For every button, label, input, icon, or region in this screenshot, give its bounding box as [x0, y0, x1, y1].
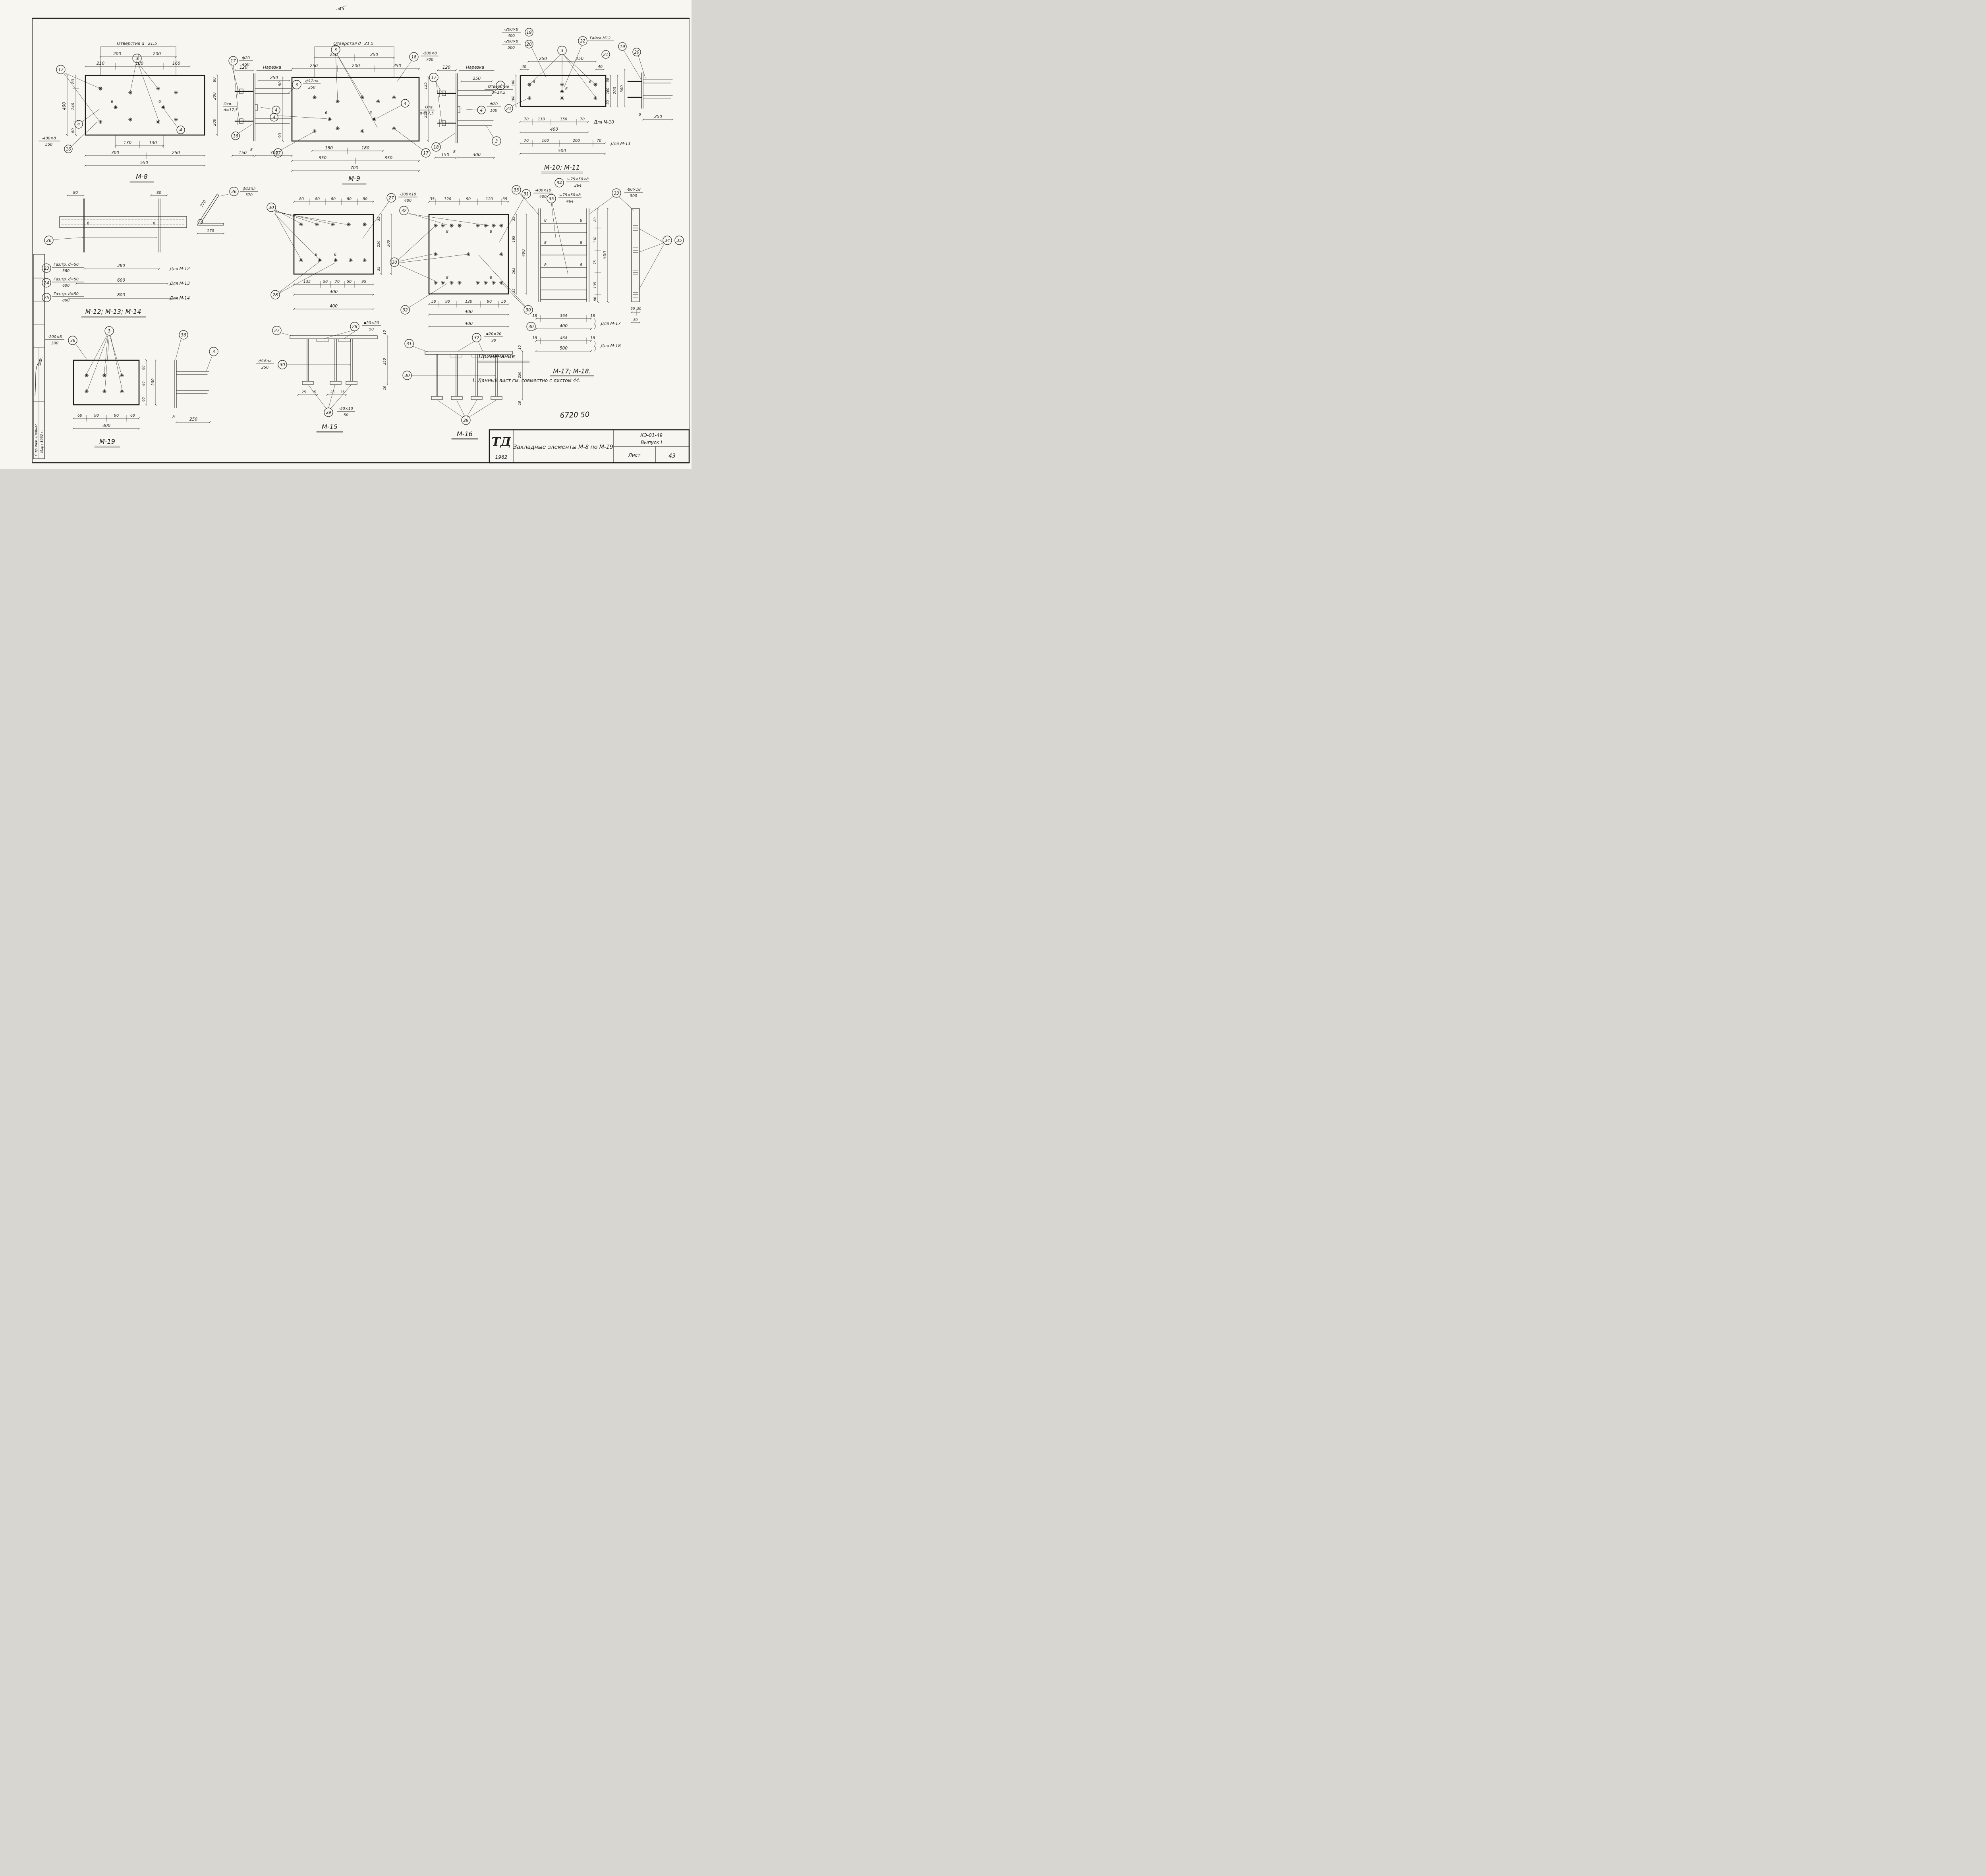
callout-21-label: 21	[506, 106, 511, 111]
view-label: М-15	[322, 423, 338, 431]
dim-text: 165	[512, 268, 516, 274]
dim-text: 25	[302, 390, 306, 394]
weld-note: ▪20×20 50	[362, 321, 381, 332]
view-m8: Отверстия d=21,5 200 200 210 180 160 6 6…	[39, 41, 321, 182]
dim-text: 270	[199, 199, 207, 208]
weld-mark: 8	[580, 263, 582, 267]
dim-text: 80	[71, 128, 75, 133]
gas-note: Газ.тр. d=50 600	[52, 277, 84, 288]
row-for: Для М-18	[600, 344, 621, 348]
svg-text:-80×18: -80×18	[626, 187, 641, 192]
view-m15: 30 80 80 80 80 80 27 -300×10 400 6 6	[256, 192, 417, 433]
callout-17-label: 17	[275, 151, 281, 156]
signature	[35, 357, 42, 395]
weld-mark: 6	[111, 100, 113, 104]
dim-text: 18	[590, 336, 595, 340]
dim-text: 10	[518, 345, 522, 350]
svg-text:-500×8: -500×8	[423, 51, 437, 56]
dim-text: 35	[340, 390, 345, 394]
weld-mark: 8	[544, 218, 547, 223]
plate-note: -400×8 550	[39, 136, 60, 147]
rod-note: ф16пл 250	[256, 359, 274, 370]
dim-text: 400	[330, 290, 338, 294]
callout-18-label: 18	[433, 145, 439, 150]
dim-text: 250	[189, 417, 197, 422]
view-m1011: -200×8 400 19 -200×8 500 20 22 Гайка М12…	[485, 27, 672, 173]
callout-30-label: 30	[269, 205, 274, 210]
callout-25-label: 25	[44, 296, 49, 300]
sheet-label: Лист	[628, 452, 641, 458]
callout-27-label: 27	[274, 328, 280, 333]
callout-32-label: 32	[402, 308, 408, 313]
title-block: ТД 1962 Закладные элементы М-8 по М-19 К…	[489, 430, 689, 463]
dim-text: 250	[270, 75, 278, 80]
weld-note: ▪20×20 90	[484, 332, 503, 343]
dim-text: 90	[114, 413, 119, 418]
dim-text: 70	[524, 117, 529, 122]
svg-text:ф12пл: ф12пл	[305, 79, 319, 83]
svg-text:∟75×50×8: ∟75×50×8	[559, 193, 581, 197]
dim-text: 400	[465, 321, 473, 326]
angle-note: ∟75×50×8 364	[566, 177, 589, 188]
dim-text: 500	[560, 346, 568, 351]
callout-31-label: 31	[524, 192, 529, 197]
bracket-detail: 26 ф12пл 570 270 170	[197, 187, 258, 234]
dim-text: 200	[213, 119, 217, 126]
holes-note: Отверстия d=21,5	[334, 41, 374, 46]
weld-mark: 6	[533, 80, 535, 84]
view-m9: Отверстия d=21,5 250 250 18 -500×8 700 2…	[270, 41, 505, 184]
dim-text: 120	[486, 197, 493, 201]
dim-text: 300	[111, 151, 119, 155]
dim-text: 70	[580, 117, 585, 122]
callout-4-label: 4	[77, 122, 80, 127]
dim-text: 80	[363, 197, 367, 201]
dim-text: 80	[593, 297, 597, 301]
callout-34-label: 34	[556, 181, 562, 185]
callout-30-label: 30	[392, 260, 397, 265]
dim-text: 150	[441, 153, 449, 157]
svg-text:-400×10: -400×10	[535, 188, 551, 193]
dim-text: 400	[522, 249, 526, 257]
weld-mark: 6	[315, 253, 317, 257]
plate-note: -200×8 500	[502, 39, 521, 50]
hole-note: Отв. d=17,5	[420, 105, 435, 116]
dim-text: 120	[444, 197, 451, 201]
dim-text: 150	[239, 151, 247, 155]
svg-text:250: 250	[308, 85, 315, 90]
svg-text:-200×8: -200×8	[48, 335, 62, 339]
callout-22-label: 22	[580, 39, 585, 44]
svg-text:ф20: ф20	[490, 102, 498, 106]
notes-item: 1. Данный лист см. совместно с листом 44…	[472, 378, 581, 383]
svg-text:-200×8: -200×8	[504, 27, 518, 32]
callout-3-label: 3	[213, 350, 215, 354]
callout-3-label: 3	[108, 329, 111, 334]
dim-text: 250	[393, 64, 401, 68]
dim-text: 70	[524, 139, 529, 143]
dim-text: 400	[62, 102, 67, 110]
callout-3-label: 3	[495, 139, 498, 144]
dim-text: 110	[538, 117, 545, 122]
dim-text: 10	[383, 330, 387, 334]
weld-mark: 8	[490, 276, 492, 280]
dim-text: 500	[558, 149, 566, 153]
dim-text: 250	[370, 52, 378, 57]
svg-text:250: 250	[261, 365, 269, 370]
dim-text: 90	[487, 299, 492, 304]
dim-text: 120	[465, 299, 472, 304]
dim-text: 250	[576, 56, 583, 61]
view-label: М-19	[99, 438, 115, 445]
bolt-note: ф20 100	[487, 102, 501, 113]
callout-26-label: 26	[46, 238, 52, 243]
callout-4-label: 4	[180, 128, 182, 133]
dim-text: 35	[502, 197, 507, 201]
logo-year: 1962	[495, 454, 508, 460]
callout-36-label: 36	[70, 338, 75, 343]
svg-text:300: 300	[51, 341, 58, 346]
view-m19: -200×8 300 36 3 60 80 60 200 60 90 90 60	[45, 327, 218, 447]
row-for: Для М-14	[169, 296, 190, 301]
svg-text:500: 500	[630, 194, 637, 198]
callout-30-label: 30	[525, 308, 531, 313]
dim-text: 30	[637, 307, 641, 311]
callout-3-label: 3	[561, 48, 564, 53]
dim-text: 200	[613, 87, 617, 94]
dim-text: 800	[117, 293, 125, 298]
thread-note: Нарезка	[466, 65, 484, 70]
dim-text: 90	[94, 413, 99, 418]
svg-text:364: 364	[574, 184, 582, 188]
drawing-sheet: 45 С.тр.инж. Шейнес Март 1962 г. Отверст…	[0, 0, 692, 469]
dim-text: 150	[560, 117, 567, 122]
row-for: Для М-13	[169, 281, 190, 286]
dim-text: 250	[518, 372, 522, 378]
dim-text: 8	[172, 415, 175, 419]
holes-note: Отверстия d=21,5	[117, 41, 157, 46]
dim-text: 80	[71, 79, 75, 84]
dim-text: 400	[560, 324, 568, 328]
dim-text: 400	[550, 127, 558, 132]
dim-text: 400	[465, 309, 473, 314]
view-m1011-side: 8 250	[624, 51, 672, 120]
callout-4-label: 4	[480, 108, 483, 113]
callout-35-label: 35	[549, 197, 554, 201]
dim-text: 400	[330, 304, 338, 309]
callout-20-label: 20	[526, 42, 532, 47]
svg-text:570: 570	[245, 193, 253, 197]
thread-note: Нарезка	[263, 65, 281, 70]
dim-text: 250	[310, 64, 318, 68]
callout-33-label: 33	[514, 188, 519, 193]
callout-17-label: 17	[431, 75, 437, 80]
svg-text:-300×10: -300×10	[400, 192, 416, 197]
weld-mark: 6	[565, 87, 568, 91]
dim-text: 250	[654, 114, 662, 119]
dim-text: 200	[151, 379, 155, 386]
svg-text:500: 500	[508, 46, 515, 50]
weld-mark: 6	[325, 111, 327, 115]
dim-text: 100	[512, 96, 516, 102]
dim-text: 200	[352, 64, 360, 68]
callout-4-label: 4	[404, 101, 407, 106]
callout-3-label: 3	[334, 48, 337, 52]
dim-text: 550	[140, 160, 148, 165]
dim-text: 300	[102, 423, 110, 428]
dim-text: 600	[117, 278, 125, 283]
callout-23-label: 23	[44, 266, 49, 271]
callout-32-label: 32	[474, 336, 479, 340]
dim-text: 130	[124, 141, 131, 145]
svg-text:-400×8: -400×8	[42, 136, 56, 141]
weld-mark: 8	[544, 263, 547, 267]
svg-text:400: 400	[404, 199, 411, 203]
dim-text: 8	[639, 112, 641, 117]
callout-27-label: 27	[388, 196, 394, 201]
svg-text:-50×10: -50×10	[339, 407, 353, 411]
dim-text: 75	[593, 260, 597, 265]
svg-text:600: 600	[62, 284, 70, 288]
gas-note: Газ.тр. d=50 380	[52, 263, 84, 273]
callout-16-label: 16	[66, 147, 71, 152]
dim-text: 200	[213, 93, 217, 100]
dim-text: 90	[466, 197, 471, 201]
dim-text: 300	[473, 153, 481, 157]
callout-3-label: 3	[136, 56, 139, 61]
dim-text: 250	[539, 56, 547, 61]
plate-note: -300×10 400	[398, 192, 417, 203]
view-m16: 35 120 90 120 35 31 -400×10 400 32 30 8 …	[390, 188, 553, 440]
weld-mark: 6	[369, 111, 372, 115]
weld-mark: 8	[544, 241, 547, 245]
row-for: Для М-17	[600, 321, 621, 326]
doc-issue: Выпуск I	[641, 440, 662, 445]
dim-text: 80	[315, 197, 320, 201]
view-m19-side: 36 3 8 250	[172, 330, 218, 422]
dim-text: 130	[149, 141, 157, 145]
callout-28-label: 28	[352, 325, 357, 329]
dim-text: 240	[71, 103, 75, 110]
org-logo: ТД	[492, 435, 512, 449]
dim-text: 80	[156, 191, 161, 195]
view-m121314: 80 80 6 6 26 23 Газ.тр. d=50 380 380 Для…	[42, 187, 258, 317]
svg-text:90: 90	[491, 338, 496, 343]
dim-text: 18	[532, 314, 537, 318]
dim-text: 135	[303, 280, 311, 284]
dim-text: 80	[347, 197, 352, 201]
svg-text:d=17,5: d=17,5	[224, 108, 238, 112]
rod-note: ф12пл 250	[303, 79, 321, 90]
dim-text: 50	[606, 100, 610, 104]
view-label: М-8	[136, 173, 148, 180]
corner-mark: 45	[336, 6, 346, 12]
dim-text: 50	[606, 78, 610, 82]
callout-16-label: 16	[233, 134, 238, 139]
nut-note: Гайка М12	[590, 36, 610, 41]
callout-35-label: 35	[676, 238, 682, 243]
callout-30-label: 30	[280, 363, 285, 367]
row-for: Для М-12	[169, 267, 190, 271]
callout-21-label: 21	[603, 52, 608, 57]
view-m16-side: 400 30 31 32 ▪20×20 90	[403, 321, 535, 425]
svg-text:Газ.тр. d=50: Газ.тр. d=50	[54, 263, 79, 267]
dim-text: 35	[512, 216, 516, 221]
weld-mark: 6	[589, 80, 591, 84]
svg-text:700: 700	[426, 58, 433, 62]
dim-text: 130	[593, 237, 597, 243]
callout-29-label: 29	[326, 410, 331, 415]
dim-text: 250	[473, 76, 481, 81]
callout-30-label: 30	[528, 325, 534, 329]
plate-m19	[73, 360, 139, 405]
angle-note: ∟75×50×8 464	[558, 193, 582, 204]
dim-text: 180	[325, 146, 333, 151]
dim-text: 180	[361, 146, 369, 151]
callout-17-label: 17	[58, 68, 64, 72]
dim-text: 70	[335, 280, 340, 284]
dim-text: 364	[560, 314, 567, 318]
dim-text: 80	[299, 197, 304, 201]
dim-text: 95	[361, 280, 366, 284]
weld-mark: 8	[490, 230, 492, 234]
dim-text: 250	[330, 52, 338, 57]
dim-text: 80	[142, 381, 146, 386]
dim-text: 500	[603, 251, 607, 259]
dim-text: 160	[542, 139, 549, 143]
callout-18-label: 18	[411, 55, 417, 60]
svg-text:50: 50	[344, 413, 348, 417]
hole-note: Отверстие d=14,5	[485, 85, 513, 95]
dim-text: 50	[631, 307, 635, 311]
callout-26-label: 26	[231, 189, 237, 194]
callout-29-label: 29	[463, 418, 469, 423]
view-label: М-9	[348, 175, 360, 182]
dim-text: 200	[573, 139, 580, 143]
svg-text:464: 464	[566, 199, 574, 204]
weld-mark: 6	[153, 221, 155, 226]
dim-text: 230	[377, 241, 381, 247]
dim-text: 35	[377, 216, 381, 221]
dim-text: 90	[445, 299, 450, 304]
callout-33-label: 33	[614, 191, 619, 196]
svg-text:550: 550	[45, 143, 52, 147]
dim-text: 60	[130, 413, 135, 418]
dim-text: 200	[153, 52, 161, 56]
dim-text: 18	[590, 314, 595, 318]
view-label: М-10; М-11	[544, 164, 580, 171]
notes-heading: Примечания	[479, 354, 515, 360]
svg-text:400: 400	[539, 195, 547, 199]
dim-text: 35	[312, 390, 316, 394]
dim-text: 18	[532, 336, 537, 340]
svg-text:d=17,5: d=17,5	[420, 111, 434, 116]
callout-19-label: 19	[620, 44, 625, 49]
dim-text: 350	[319, 156, 326, 160]
weld-mark: 8	[446, 230, 448, 234]
view-m15-side: 400 27 28 ▪20×20 50	[256, 304, 387, 417]
dim-text: 50	[501, 299, 506, 304]
dim-text: 35	[377, 267, 381, 271]
view-label: М-17; М-18.	[553, 367, 591, 375]
dim-text: 60	[77, 413, 82, 418]
dim-text: 200	[113, 52, 121, 56]
svg-text:Отверстие: Отверстие	[488, 85, 509, 89]
dim-text: 160	[172, 61, 180, 66]
sheet-number: 43	[668, 453, 676, 459]
view-label: М-16	[457, 430, 473, 438]
svg-text:800: 800	[62, 298, 70, 303]
callout-4-label: 4	[275, 108, 278, 113]
row-for: Для М-10	[593, 120, 614, 125]
row-for: Для М-11	[610, 141, 631, 146]
view-label: М-12; М-13; М-14	[85, 308, 141, 315]
dim-text: 170	[207, 229, 214, 233]
svg-text:Отв.: Отв.	[425, 105, 434, 110]
callout-24-label: 24	[44, 281, 49, 286]
callout-20-label: 20	[634, 50, 639, 55]
weld-mark: 6	[158, 100, 161, 104]
dim-text: 80	[593, 217, 597, 222]
svg-text:▪20×20: ▪20×20	[486, 332, 502, 336]
dim-text: 60	[142, 365, 146, 370]
dim-text: 100	[512, 80, 516, 86]
corner-mark-text: 45	[338, 6, 344, 12]
washer-note: -50×10 50	[337, 407, 355, 417]
dim-text: 90	[278, 133, 282, 138]
dim-text: 380	[117, 263, 125, 268]
plate-note: -200×8 300	[45, 335, 64, 346]
dim-text: 10	[518, 401, 522, 405]
plate-m8	[85, 75, 205, 135]
dim-text: 300	[386, 240, 391, 247]
plate-note: -500×8 700	[421, 51, 439, 62]
svg-text:ф20: ф20	[242, 56, 250, 60]
dim-text: 80	[634, 318, 638, 322]
dim-text: 120	[442, 65, 450, 70]
dim-text: 8	[453, 150, 456, 154]
svg-text:50: 50	[369, 327, 374, 332]
dim-text: 90	[278, 81, 282, 86]
strip-note: -80×18 500	[624, 187, 643, 198]
weld-mark: 8	[580, 218, 582, 223]
svg-text:Отв.: Отв.	[224, 102, 232, 106]
gas-note: Газ.тр. d=50 800	[52, 292, 84, 303]
weld-mark: 8	[580, 241, 582, 245]
svg-text:400: 400	[508, 34, 515, 38]
dim-text: 50	[431, 299, 436, 304]
sheet-title: Закладные элементы М-8 по М-19	[513, 444, 613, 450]
svg-text:Газ.тр. d=50: Газ.тр. d=50	[54, 292, 79, 296]
dim-text: 700	[350, 166, 358, 170]
dim-text: 70	[597, 139, 601, 143]
callout-19-label: 19	[526, 30, 532, 35]
svg-text:450: 450	[242, 62, 249, 67]
dim-text: 210	[97, 61, 104, 66]
dim-text: 125	[423, 82, 428, 89]
stamp-date: Март 1962 г.	[40, 430, 44, 453]
svg-text:▪20×20: ▪20×20	[364, 321, 379, 325]
svg-text:Газ.тр. d=50: Газ.тр. d=50	[54, 277, 79, 282]
dim-text: 80	[73, 191, 78, 195]
dim-text: 135	[593, 282, 597, 288]
dim-text: 300	[620, 85, 624, 93]
top-plate	[290, 336, 377, 339]
callout-31-label: 31	[406, 342, 411, 346]
callout-17-label: 17	[230, 59, 236, 64]
sheet-frame	[33, 18, 689, 463]
dim-text: 8	[250, 148, 253, 152]
